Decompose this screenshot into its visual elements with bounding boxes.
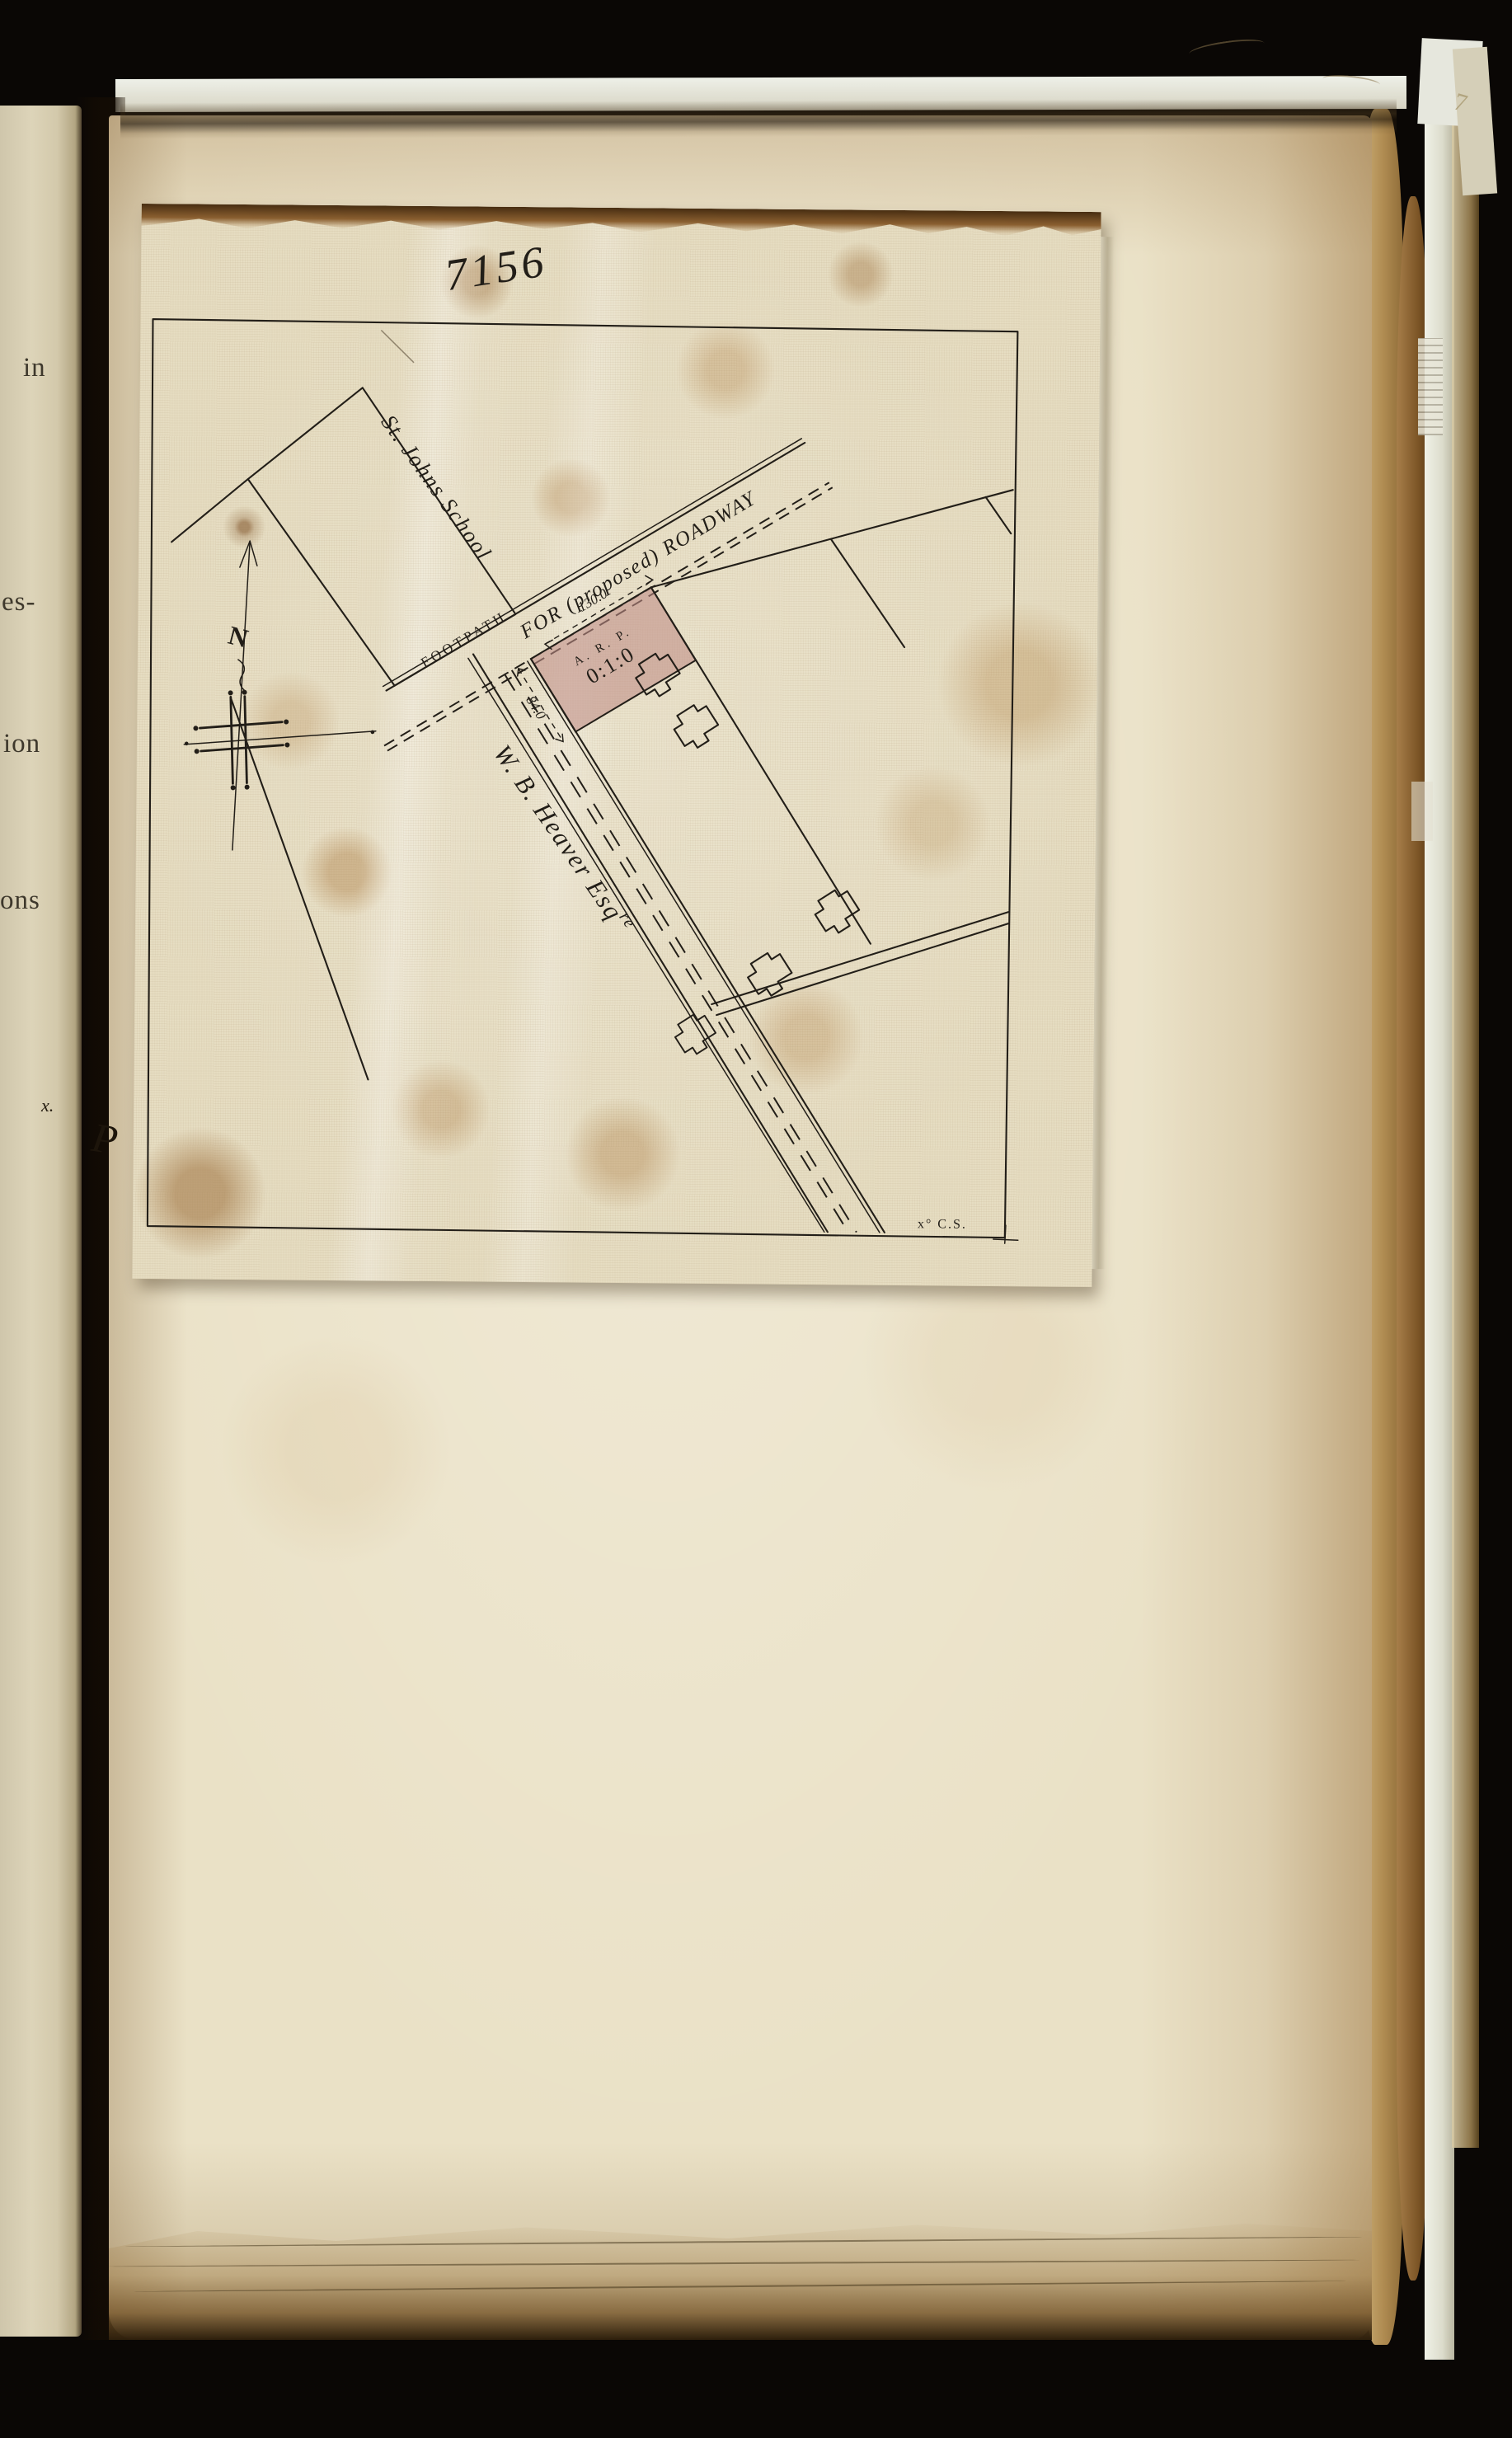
left-page-text-fragment: ion bbox=[3, 729, 40, 759]
book-photograph: 7 in es- ion ons x. P 7156 St. Johns Sch… bbox=[0, 0, 1512, 2438]
building-footprint bbox=[669, 700, 722, 754]
page-edge-streaks bbox=[120, 98, 1397, 139]
plot-division-line bbox=[830, 539, 905, 647]
linen-map-sheet: 7156 St. Johns School FOOTPATH FOR (prop… bbox=[132, 204, 1101, 1287]
owner-label-main: W. B. Heaver Esq bbox=[488, 740, 629, 926]
pencil-stray-line bbox=[381, 330, 414, 362]
surveyor-mark: x° C.S. bbox=[918, 1217, 967, 1232]
road-centerline-dashes bbox=[507, 670, 862, 1233]
plot-division-line bbox=[985, 497, 1011, 533]
left-page-text-fragment: es- bbox=[2, 587, 35, 618]
school-plot-extension bbox=[171, 478, 248, 543]
left-page-text-fragment: ons bbox=[0, 885, 40, 916]
road-centerline-dashes bbox=[500, 675, 853, 1233]
plan-number: 7156 bbox=[442, 236, 551, 300]
field-boundary-line bbox=[228, 699, 371, 1079]
building-footprint bbox=[810, 885, 863, 938]
white-sheet-edge bbox=[1425, 97, 1454, 2360]
page-edges-stack-outer bbox=[1452, 120, 1479, 2148]
owner-label: W. B. Heaver Esqre bbox=[488, 739, 640, 940]
left-margin-mark: x. bbox=[41, 1095, 54, 1116]
site-plan-drawing: 7156 St. Johns School FOOTPATH FOR (prop… bbox=[132, 204, 1101, 1287]
footpath-label: FOOTPATH bbox=[418, 608, 509, 670]
school-plot-label: St. Johns School bbox=[377, 411, 497, 566]
edge-label-fragment bbox=[1418, 338, 1443, 435]
left-page-text-fragment: in bbox=[23, 353, 46, 383]
left-page-edge: in es- ion ons x. bbox=[0, 106, 82, 2337]
north-arrow-shaft bbox=[232, 541, 250, 850]
page-bottom-curl bbox=[109, 2216, 1372, 2340]
compass-cross bbox=[182, 684, 378, 792]
north-arrow: N bbox=[181, 540, 380, 851]
map-border-tick bbox=[993, 1225, 1018, 1243]
road-edge-line bbox=[468, 654, 833, 1232]
compass-ornament bbox=[238, 660, 247, 692]
road-edge-line bbox=[526, 659, 890, 1233]
edge-label-fragment bbox=[1411, 782, 1433, 841]
road-edge-line bbox=[523, 661, 885, 1233]
side-dimension-label: 84.0 bbox=[523, 693, 549, 723]
pen-squiggle bbox=[1188, 36, 1265, 62]
north-label: N bbox=[225, 620, 251, 654]
